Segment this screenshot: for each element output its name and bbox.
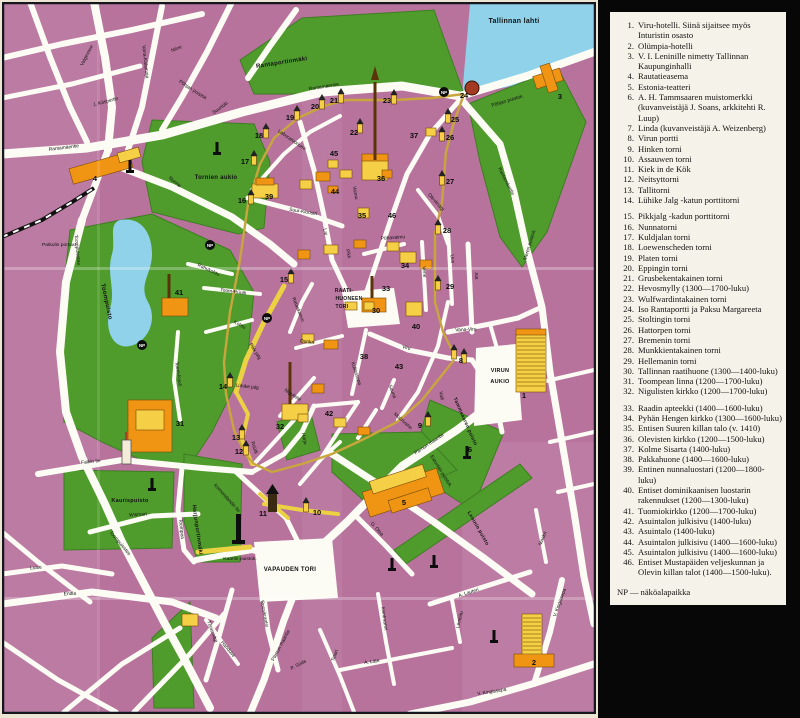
- wall-tower: [440, 176, 445, 185]
- building: [300, 180, 312, 189]
- map-marker-11: 11: [259, 509, 267, 518]
- street-label: Kaarlin puistok.: [223, 556, 256, 562]
- legend-item-text: Entinen nunnaluostari (1200—1800-luku): [638, 464, 765, 484]
- legend-item: 10. Assauwen torni: [616, 154, 782, 164]
- legend-item-number: 39.: [616, 464, 634, 474]
- legend-item-text: Asuintalon julkisivu (1400-luku): [638, 516, 751, 526]
- legend-item-text: Assauwen torni: [638, 154, 692, 164]
- map-marker-24: 24: [460, 91, 469, 100]
- legend-item-number: 9.: [616, 144, 634, 154]
- map-marker-40: 40: [412, 322, 420, 331]
- legend-item-text: Eppingin torni: [638, 263, 688, 273]
- map-marker-10: 10: [313, 508, 321, 517]
- legend-item: 7. Linda (kuvanveistäjä A. Weizenberg): [616, 123, 782, 133]
- wall-tower: [452, 350, 457, 359]
- legend-item-number: 31.: [616, 376, 634, 386]
- statue-base: [126, 170, 134, 173]
- statue-base: [463, 456, 471, 459]
- street-label: Luise: [30, 565, 42, 572]
- statue-base: [490, 640, 498, 643]
- map-marker-33: 33: [382, 284, 390, 293]
- legend-item-text: Tallinnan raatihuone (1300—1400-luku): [638, 366, 778, 376]
- legend-item-number: 21.: [616, 273, 634, 283]
- legend-item-number: 34.: [616, 413, 634, 423]
- legend-item-number: 29.: [616, 356, 634, 366]
- legend-item: 18. Loewenscheden torni: [616, 242, 782, 252]
- legend-item: 15. Pikkjalg -kadun porttitorni: [616, 211, 782, 221]
- legend-item-text: Hellemanin torni: [638, 356, 696, 366]
- legend-item-number: 30.: [616, 366, 634, 376]
- legend-item-text: A. H. Tammsaaren muistomerkki (kuvanveis…: [638, 92, 766, 123]
- legend-item-number: 44.: [616, 537, 634, 547]
- legend-item-number: 26.: [616, 325, 634, 335]
- building: [358, 427, 370, 435]
- map-marker-44: 44: [331, 187, 340, 196]
- monument-column: [236, 514, 241, 540]
- legend-item-text: Nigulisten kirkko (1200—1700-luku): [638, 386, 767, 396]
- map-marker-30: 30: [372, 306, 380, 315]
- building: [516, 329, 546, 335]
- map-sheet: Põhjan puistok.Põhjan puistokRantamäenti…: [0, 0, 598, 718]
- legend-item: 11. Kiek in de Kök: [616, 164, 782, 174]
- area-label: Tornien aukio: [195, 175, 238, 181]
- map-marker-32: 32: [276, 422, 284, 431]
- street-label: Endla: [64, 591, 77, 598]
- legend-item-number: 8.: [616, 133, 634, 143]
- map-marker-46: 46: [388, 211, 396, 220]
- legend-item-number: 4.: [616, 71, 634, 81]
- legend-item-number: 20.: [616, 263, 634, 273]
- legend-item: 17. Kuldjalan torni: [616, 232, 782, 242]
- legend-item-number: 38.: [616, 454, 634, 464]
- map-marker-18: 18: [255, 131, 263, 140]
- legend-item-number: 3.: [616, 51, 634, 61]
- map-marker-26: 26: [446, 133, 454, 142]
- legend-item-text: Raadin apteekki (1400—1600-luku): [638, 403, 763, 413]
- map-marker-17: 17: [241, 157, 249, 166]
- legend-item: 32. Nigulisten kirkko (1200—1700-luku): [616, 386, 782, 396]
- legend-item-text: Asuintalon julkisivu (1400—1600-luku): [638, 537, 777, 547]
- legend-item-number: 1.: [616, 20, 634, 30]
- legend-item-text: Neitsyttorni: [638, 174, 679, 184]
- map-marker-37: 37: [410, 131, 418, 140]
- legend-item-number: 5.: [616, 82, 634, 92]
- map-marker-35: 35: [358, 211, 366, 220]
- wall-tower: [264, 129, 269, 138]
- building: [162, 298, 188, 316]
- building: [256, 178, 274, 185]
- legend-item: 40. Entiset dominikaanisen luostarin rak…: [616, 485, 782, 506]
- legend-item-text: Stoltingin torni: [638, 314, 690, 324]
- building: [328, 160, 338, 168]
- legend-item-text: Asuintalo (1400-luku): [638, 526, 715, 536]
- legend-np-note: NP — näköalapaikka: [616, 587, 782, 597]
- wall-tower: [436, 281, 441, 290]
- legend-item: 22. Hevosmylly (1300—1700-luku): [616, 283, 782, 293]
- legend-item-text: Viru-hotelli. Siinä sijaitsee myös Intur…: [638, 20, 751, 40]
- building: [334, 418, 346, 427]
- legend-item-text: Tallitorni: [638, 185, 670, 195]
- wall-tower: [320, 100, 325, 109]
- legend-item-text: Pyhän Hengen kirkko (1300—1600-luku): [638, 413, 782, 423]
- legend-item: 44. Asuintalon julkisivu (1400—1600-luku…: [616, 537, 782, 547]
- map-marker-6: 6: [468, 445, 472, 454]
- map-marker-42: 42: [325, 409, 333, 418]
- statue-base: [213, 152, 221, 155]
- legend-item: 30. Tallinnan raatihuone (1300—1400-luku…: [616, 366, 782, 376]
- legend-item: 2. Olümpia-hotelli: [616, 41, 782, 51]
- legend-item-number: 40.: [616, 485, 634, 495]
- legend-item-text: Toompean linna (1200—1700-luku): [638, 376, 762, 386]
- legend-item-number: 32.: [616, 386, 634, 396]
- legend-list: 1. Viru-hotelli. Siinä sijaitsee myös In…: [616, 20, 782, 578]
- wall-tower: [446, 114, 451, 123]
- legend-item-text: Entiset dominikaanisen luostarin rakennu…: [638, 485, 751, 505]
- legend-item: 12. Neitsyttorni: [616, 174, 782, 184]
- building: [522, 614, 542, 660]
- legend-item-number: 14.: [616, 195, 634, 205]
- map-marker-27: 27: [446, 177, 454, 186]
- legend-item-number: 46.: [616, 557, 634, 567]
- legend-item-text: Virun portti: [638, 133, 678, 143]
- legend-item: 38. Pakkahuone (1400—1600-luku): [616, 454, 782, 464]
- building: [324, 245, 338, 254]
- legend-item: 34. Pyhän Hengen kirkko (1300—1600-luku): [616, 413, 782, 423]
- legend-item: 4. Rautatieasema: [616, 71, 782, 81]
- map-marker-22: 22: [350, 128, 358, 137]
- legend-item: 24. Iso Rantaportti ja Paksu Margareeta: [616, 304, 782, 314]
- building: [182, 614, 198, 626]
- map-marker-7: 7: [150, 480, 154, 489]
- area-label: HUONEEN: [335, 296, 362, 302]
- legend-item-text: Hattorpen torni: [638, 325, 691, 335]
- legend-item-number: 18.: [616, 242, 634, 252]
- legend-item: 25. Stoltingin torni: [616, 314, 782, 324]
- legend-item: 14. Lühike Jalg -katun porttitorni: [616, 195, 782, 205]
- statue: [433, 555, 436, 565]
- map-marker-39: 39: [265, 192, 273, 201]
- map-marker-28: 28: [443, 226, 451, 235]
- legend-item-number: 7.: [616, 123, 634, 133]
- legend-item-text: Iso Rantaportti ja Paksu Margareeta: [638, 304, 761, 314]
- legend-item-text: Pakkahuone (1400—1600-luku): [638, 454, 749, 464]
- legend-item: 13. Tallitorni: [616, 185, 782, 195]
- legend-item-number: 24.: [616, 304, 634, 314]
- map-marker-45: 45: [330, 149, 338, 158]
- legend-item: 35. Entisen Suuren killan talo (v. 1410): [616, 423, 782, 433]
- building: [354, 240, 366, 248]
- wall-tower: [339, 94, 344, 103]
- legend-item: 5. Estonia-teatteri: [616, 82, 782, 92]
- legend-item-text: Entisen Suuren killan talo (v. 1410): [638, 423, 760, 433]
- legend-item-text: Wulfwardintakainen torni: [638, 294, 727, 304]
- legend-item: 20. Eppingin torni: [616, 263, 782, 273]
- legend-item: 6. A. H. Tammsaaren muistomerkki (kuvanv…: [616, 92, 782, 123]
- legend-item-number: 16.: [616, 222, 634, 232]
- building: [340, 170, 352, 178]
- legend-item-number: 13.: [616, 185, 634, 195]
- building: [312, 384, 324, 393]
- fold-crease: [2, 267, 596, 270]
- legend-item-number: 41.: [616, 506, 634, 516]
- map-marker-8: 8: [459, 356, 463, 365]
- statue-base: [388, 568, 396, 571]
- wall-tower: [440, 132, 445, 141]
- wall-tower: [358, 124, 363, 133]
- map-marker-12: 12: [235, 447, 243, 456]
- statue: [493, 630, 496, 640]
- area-label: AUKIO: [490, 379, 510, 385]
- wall-tower: [240, 430, 245, 439]
- building: [298, 414, 308, 422]
- legend-item: 1. Viru-hotelli. Siinä sijaitsee myös In…: [616, 20, 782, 41]
- area-label: TORI: [335, 304, 348, 310]
- legend-item: 45. Asuintalon julkisivu (1400—1600-luku…: [616, 547, 782, 557]
- legend-item-text: Tuomiokirkko (1200—1700-luku): [638, 506, 756, 516]
- map-marker-23: 23: [383, 96, 391, 105]
- map-marker-21: 21: [330, 96, 338, 105]
- monument-base: [232, 540, 245, 544]
- map-marker-43: 43: [395, 362, 403, 371]
- street-label: Uus: [449, 254, 456, 264]
- area-label: RAATI-: [335, 288, 353, 294]
- street-label: Aia: [473, 272, 480, 280]
- legend-item-text: Entiset Mustapäiden veljeskunnan ja Olev…: [638, 557, 772, 577]
- map-marker-19: 19: [286, 113, 294, 122]
- wall-tower: [228, 378, 233, 387]
- legend-item-number: 6.: [616, 92, 634, 102]
- wall-tower: [392, 95, 397, 104]
- legend-item: 19. Platen torni: [616, 253, 782, 263]
- np-viewpoint-label: NP: [207, 243, 213, 248]
- legend-item-text: Bremenin torni: [638, 335, 690, 345]
- legend-item: 9. Hinken torni: [616, 144, 782, 154]
- legend-item-text: Hevosmylly (1300—1700-luku): [638, 283, 749, 293]
- map-marker-5: 5: [402, 498, 406, 507]
- building: [316, 172, 330, 181]
- statue: [391, 558, 394, 568]
- street-label: Patkulin portaat: [42, 242, 77, 248]
- map-marker-29: 29: [446, 282, 454, 291]
- area-label: Tallinnan lahti: [488, 18, 539, 25]
- legend-panel: 1. Viru-hotelli. Siinä sijaitsee myös In…: [610, 12, 786, 605]
- building: [516, 334, 546, 392]
- legend-item: 43. Asuintalo (1400-luku): [616, 526, 782, 536]
- legend-item: 28. Munkkientakainen torni: [616, 345, 782, 355]
- legend-item-text: Kolme Sisarta (1400-luku): [638, 444, 730, 454]
- statue-base: [430, 565, 438, 568]
- wall-tower: [289, 274, 294, 283]
- area-label: VAPAUDEN TORI: [264, 567, 317, 573]
- legend-item-number: 35.: [616, 423, 634, 433]
- map-marker-36: 36: [377, 174, 385, 183]
- legend-item: 8. Virun portti: [616, 133, 782, 143]
- map-marker-38: 38: [360, 352, 368, 361]
- legend-item-text: Kiek in de Kök: [638, 164, 691, 174]
- area-label: VIRUN: [491, 368, 510, 374]
- map-marker-41: 41: [175, 288, 183, 297]
- legend-item-text: Estonia-teatteri: [638, 82, 691, 92]
- legend-item-number: 22.: [616, 283, 634, 293]
- screenshot-root: Põhjan puistok.Põhjan puistokRantamäenti…: [0, 0, 800, 718]
- building: [324, 340, 338, 349]
- legend-item-text: Olevisten kirkko (1200—1500-luku): [638, 434, 765, 444]
- legend-item: 21. Grusbekentakainen torni: [616, 273, 782, 283]
- legend-item-text: Loewenscheden torni: [638, 242, 712, 252]
- street-label: Vana-Viru: [455, 326, 477, 333]
- wall-tower: [252, 156, 257, 165]
- kiek-in-de-kok-tower: [268, 494, 277, 512]
- map-marker-20: 20: [311, 102, 319, 111]
- np-viewpoint-label: NP: [264, 316, 270, 321]
- legend-item-number: 45.: [616, 547, 634, 557]
- legend-item: 26. Hattorpen torni: [616, 325, 782, 335]
- legend-item-text: Grusbekentakainen torni: [638, 273, 723, 283]
- legend-item: 27. Bremenin torni: [616, 335, 782, 345]
- legend-item-number: 23.: [616, 294, 634, 304]
- legend-item-text: Rautatieasema: [638, 71, 688, 81]
- legend-item-text: V. I. Leninille nimetty Tallinnan Kaupun…: [638, 51, 748, 71]
- legend-item-text: Olümpia-hotelli: [638, 41, 693, 51]
- statue: [216, 142, 219, 152]
- building: [298, 250, 310, 259]
- np-viewpoint-label: NP: [139, 343, 145, 348]
- street-label: Wismari: [129, 511, 147, 518]
- map-marker-14: 14: [219, 382, 228, 391]
- legend-item-text: Linda (kuvanveistäjä A. Weizenberg): [638, 123, 766, 133]
- legend-item-number: 2.: [616, 41, 634, 51]
- fold-crease: [2, 597, 596, 600]
- building: [426, 128, 436, 136]
- legend-item-number: 10.: [616, 154, 634, 164]
- map-marker-16: 16: [238, 196, 246, 205]
- area-label: Kaurispuisto: [111, 498, 149, 504]
- statue: [129, 160, 132, 170]
- building: [406, 302, 422, 316]
- map-marker-2: 2: [532, 658, 536, 667]
- legend-item: 41. Tuomiokirkko (1200—1700-luku): [616, 506, 782, 516]
- map-marker-15: 15: [280, 275, 288, 284]
- legend-item: 46. Entiset Mustapäiden veljeskunnan ja …: [616, 557, 782, 578]
- map-marker-13: 13: [232, 433, 240, 442]
- city-map: Põhjan puistok.Põhjan puistokRantamäenti…: [2, 2, 596, 714]
- building: [136, 410, 164, 430]
- map-marker-1: 1: [522, 391, 526, 400]
- np-viewpoint-label: NP: [441, 90, 447, 95]
- legend-item: 16. Nunnatorni: [616, 222, 782, 232]
- wall-tower: [436, 225, 441, 234]
- legend-item-number: 36.: [616, 434, 634, 444]
- wall-tower: [244, 446, 249, 455]
- viru-square: [474, 344, 522, 426]
- legend-item-number: 43.: [616, 526, 634, 536]
- legend-item-text: Platen torni: [638, 253, 678, 263]
- wall-tower: [304, 503, 309, 512]
- legend-item: 37. Kolme Sisarta (1400-luku): [616, 444, 782, 454]
- legend-item-text: Nunnatorni: [638, 222, 677, 232]
- legend-item: 3. V. I. Leninille nimetty Tallinnan Kau…: [616, 51, 782, 72]
- street-label: Lai: [321, 228, 328, 235]
- wall-tower: [249, 195, 254, 204]
- legend-item-text: Hinken torni: [638, 144, 682, 154]
- legend-item: 33. Raadin apteekki (1400—1600-luku): [616, 403, 782, 413]
- legend-item-number: 37.: [616, 444, 634, 454]
- legend-item-number: 19.: [616, 253, 634, 263]
- building: [387, 242, 399, 251]
- legend-item: 42. Asuintalon julkisivu (1400-luku): [616, 516, 782, 526]
- legend-item-number: 42.: [616, 516, 634, 526]
- legend-item: 31. Toompean linna (1200—1700-luku): [616, 376, 782, 386]
- map-marker-25: 25: [451, 115, 459, 124]
- legend-item-text: Kuldjalan torni: [638, 232, 690, 242]
- legend-item-number: 28.: [616, 345, 634, 355]
- legend-item: 29. Hellemanin torni: [616, 356, 782, 366]
- legend-item-text: Asuintalon julkisivu (1400—1600-luku): [638, 547, 777, 557]
- map-marker-34: 34: [401, 261, 410, 270]
- map-marker-3: 3: [558, 92, 562, 101]
- legend-item-number: 11.: [616, 164, 634, 174]
- legend-item-number: 33.: [616, 403, 634, 413]
- map-marker-31: 31: [176, 419, 184, 428]
- legend-item-number: 15.: [616, 211, 634, 221]
- street-label: Vene: [420, 266, 427, 278]
- legend-item: 36. Olevisten kirkko (1200—1500-luku): [616, 434, 782, 444]
- legend-item-text: Lühike Jalg -katun porttitorni: [638, 195, 739, 205]
- legend-band: 1. Viru-hotelli. Siinä sijaitsee myös In…: [598, 0, 800, 718]
- map-marker-9: 9: [418, 421, 422, 430]
- legend-item-number: 27.: [616, 335, 634, 345]
- legend-item-number: 25.: [616, 314, 634, 324]
- legend-item-text: Munkkientakainen torni: [638, 345, 721, 355]
- wall-tower: [426, 417, 431, 426]
- legend-item-number: 12.: [616, 174, 634, 184]
- legend-item: 23. Wulfwardintakainen torni: [616, 294, 782, 304]
- legend-item-text: Pikkjalg -kadun porttitorni: [638, 211, 730, 221]
- pikk-hermann-tower: [122, 440, 131, 464]
- legend-item-number: 17.: [616, 232, 634, 242]
- legend-item: 39. Entinen nunnaluostari (1200—1800-luk…: [616, 464, 782, 485]
- wall-tower: [295, 111, 300, 120]
- fold-crease: [97, 2, 100, 714]
